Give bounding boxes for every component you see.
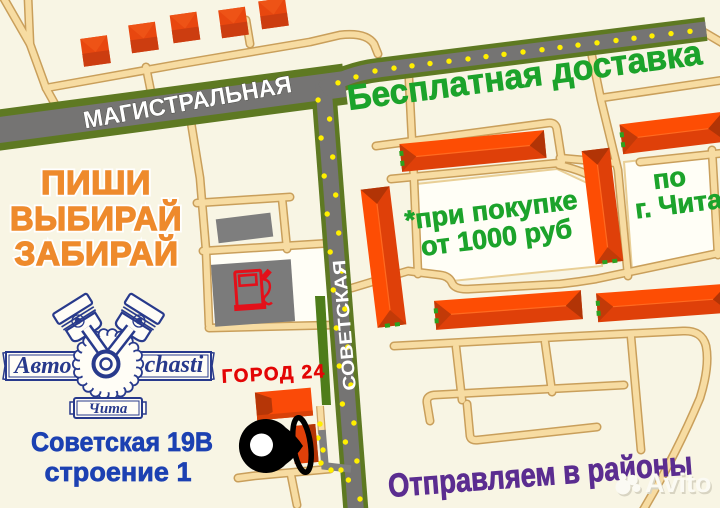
svg-text:Чита: Чита [89, 401, 128, 417]
svg-text:Avito: Avito [645, 468, 712, 498]
svg-text:строение 1: строение 1 [45, 457, 192, 487]
svg-text:ЗАБИРАЙ: ЗАБИРАЙ [15, 234, 179, 272]
svg-text:ВЫБИРАЙ: ВЫБИРАЙ [10, 199, 182, 237]
svg-text:ПИШИ: ПИШИ [41, 164, 151, 201]
svg-text:chasti: chasti [145, 352, 204, 378]
svg-text:Советская 19В: Советская 19В [31, 427, 213, 457]
svg-text:Авто: Авто [12, 353, 71, 379]
